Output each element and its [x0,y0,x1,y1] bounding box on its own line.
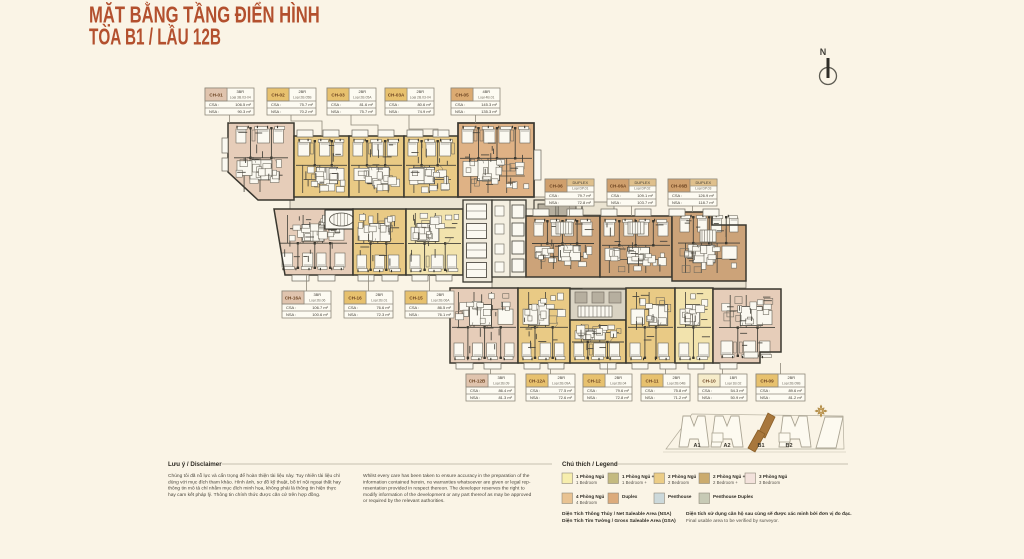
svg-text:Loại 2B.04: Loại 2B.04 [610,382,626,386]
svg-text:103.7 m²: 103.7 m² [637,200,653,205]
svg-text:79.6 m²: 79.6 m² [615,388,629,393]
svg-text:NSA :: NSA : [286,312,296,317]
svg-text:4BR: 4BR [482,89,490,94]
svg-text:1 Phòng Ngủ: 1 Phòng Ngủ [576,474,605,479]
svg-text:2BR: 2BR [787,375,795,380]
svg-text:information contained herein,: information contained herein, no warrant… [363,479,531,485]
svg-text:CSA :: CSA : [645,388,655,393]
svg-text:B1: B1 [757,443,764,449]
svg-text:81.2 m²: 81.2 m² [788,395,802,400]
svg-text:TÒA B1 / LẦU 12B: TÒA B1 / LẦU 12B [89,22,221,50]
svg-text:Loại 2B.03-04: Loại 2B.03-04 [410,96,431,100]
svg-text:Penthouse Duplex: Penthouse Duplex [713,494,754,499]
svg-text:Loại 2B.09: Loại 2B.09 [493,382,509,386]
svg-text:100.6 m²: 100.6 m² [312,312,328,317]
svg-text:Loại 1B.02: Loại 1B.02 [725,382,741,386]
svg-text:Penthouse: Penthouse [668,494,692,499]
svg-text:50.9 m²: 50.9 m² [730,395,744,400]
svg-text:CSA :: CSA : [389,102,399,107]
svg-text:modify information of the deve: modify information of the development or… [363,492,532,498]
svg-text:NSA :: NSA : [209,109,219,114]
svg-text:Loại DP.01: Loại DP.01 [572,187,588,191]
svg-text:A1: A1 [693,443,700,449]
svg-text:1 Bedroom: 1 Bedroom [576,480,597,485]
svg-text:3BR: 3BR [497,375,505,380]
svg-text:2BR: 2BR [416,89,424,94]
svg-text:hay cam kết pháp lý. Thông tin: hay cam kết pháp lý. Thông tin chính thứ… [168,492,320,498]
svg-text:Loại 2B.04B: Loại 2B.04B [667,382,686,386]
svg-text:CSA :: CSA : [611,193,621,198]
svg-text:CSA :: CSA : [455,102,465,107]
svg-text:DUPLEX: DUPLEX [572,180,588,185]
svg-text:CH-12: CH-12 [587,378,601,383]
svg-text:NSA :: NSA : [672,200,682,205]
svg-text:A2: A2 [723,443,730,449]
svg-text:NSA :: NSA : [331,109,341,114]
svg-text:CSA :: CSA : [348,305,358,310]
svg-text:70.2 m²: 70.2 m² [299,109,313,114]
svg-text:Loại 2B.05B: Loại 2B.05B [293,96,312,100]
svg-text:CSA :: CSA : [587,388,597,393]
svg-text:80.6 m²: 80.6 m² [417,102,431,107]
svg-text:or required by the relevant au: or required by the relevant authorities. [363,498,445,504]
svg-text:2BR: 2BR [557,375,565,380]
svg-text:NSA :: NSA : [470,395,480,400]
svg-text:106.5 m²: 106.5 m² [235,102,251,107]
svg-text:CH-09: CH-09 [760,378,774,383]
svg-text:DUPLEX: DUPLEX [634,180,650,185]
svg-text:81.3 m²: 81.3 m² [498,395,512,400]
svg-text:2 Phòng Ngủ: 2 Phòng Ngủ [668,474,697,479]
svg-text:CH-01: CH-01 [209,92,223,97]
svg-text:2BR: 2BR [672,375,680,380]
svg-text:81.6 m²: 81.6 m² [359,102,373,107]
svg-text:72.6 m²: 72.6 m² [558,395,572,400]
svg-text:1BR: 1BR [729,375,737,380]
svg-text:135.3 m²: 135.3 m² [481,109,497,114]
svg-text:Loại 2B.06A: Loại 2B.06A [431,299,450,303]
svg-text:Final usable area to be verifi: Final usable area to be verified by surv… [686,518,779,524]
svg-text:CSA :: CSA : [331,102,341,107]
svg-text:Loại 2B.09B: Loại 2B.09B [782,382,801,386]
svg-text:CSA :: CSA : [530,388,540,393]
svg-text:145.3 m²: 145.3 m² [481,102,497,107]
svg-text:Lưu ý / Disclaimer: Lưu ý / Disclaimer [168,461,222,468]
svg-text:resentation provided in respec: resentation provided in respect thereon.… [363,486,525,492]
svg-text:Duplex: Duplex [622,494,638,499]
svg-text:2BR: 2BR [298,89,306,94]
svg-text:4 Bedroom: 4 Bedroom [576,500,597,505]
svg-text:1 Phòng Ngủ +: 1 Phòng Ngủ + [622,474,655,479]
svg-text:Loại DP.02: Loại DP.02 [634,187,650,191]
svg-text:106.7 m²: 106.7 m² [312,305,328,310]
svg-text:CSA :: CSA : [549,193,559,198]
svg-text:CSA :: CSA : [409,305,419,310]
svg-text:72.3 m²: 72.3 m² [376,312,390,317]
svg-text:NSA :: NSA : [530,395,540,400]
svg-text:CH-12A: CH-12A [529,378,546,383]
svg-text:CH-06A: CH-06A [610,183,627,188]
svg-text:72.8 m²: 72.8 m² [577,200,591,205]
svg-text:75.7 m²: 75.7 m² [359,109,373,114]
svg-text:NSA :: NSA : [702,395,712,400]
svg-text:CH-11: CH-11 [646,378,659,383]
svg-text:Loại 4B.01: Loại 4B.01 [478,96,494,100]
svg-text:2 Phòng Ngủ +: 2 Phòng Ngủ + [713,474,746,479]
svg-text:74.9 m²: 74.9 m² [417,109,431,114]
svg-text:86.4 m²: 86.4 m² [498,388,512,393]
svg-text:CH-06B: CH-06B [671,183,688,188]
svg-text:3BR: 3BR [313,292,321,297]
svg-text:90.3 m²: 90.3 m² [237,109,251,114]
svg-text:2BR: 2BR [436,292,444,297]
svg-text:3 Bedroom: 3 Bedroom [759,480,780,485]
svg-text:CH-05: CH-05 [455,92,469,97]
svg-text:118.7 m²: 118.7 m² [699,200,715,205]
svg-text:CSA :: CSA : [760,388,770,393]
svg-text:NSA :: NSA : [587,395,597,400]
svg-text:CSA :: CSA : [271,102,281,107]
svg-text:79.7 m²: 79.7 m² [577,193,591,198]
svg-text:CH-15: CH-15 [409,295,423,300]
svg-text:Chúng tôi đã nỗ lực và cẩn trọ: Chúng tôi đã nỗ lực và cẩn trọng để hoàn… [168,472,341,479]
svg-text:Diện Tích Thông Thủy / Net Sal: Diện Tích Thông Thủy / Net Saleable Area… [562,511,672,517]
svg-text:2 Bedroom: 2 Bedroom [668,480,689,485]
svg-text:CSA :: CSA : [209,102,219,107]
svg-text:CSA :: CSA : [470,388,480,393]
svg-text:109.1 m²: 109.1 m² [637,193,653,198]
svg-text:2 Bedroom +: 2 Bedroom + [713,480,738,485]
svg-text:CSA :: CSA : [286,305,296,310]
svg-text:77.5 m²: 77.5 m² [558,388,572,393]
svg-text:4 Phòng Ngủ: 4 Phòng Ngủ [576,494,605,499]
svg-text:thông tin mô tả chỉ nhằm mục đ: thông tin mô tả chỉ nhằm mục đích minh h… [168,485,337,492]
svg-text:NSA :: NSA : [409,312,419,317]
svg-text:NSA :: NSA : [455,109,465,114]
svg-text:Loại 2B.06: Loại 2B.06 [309,299,325,303]
svg-text:75.7 m²: 75.7 m² [299,102,313,107]
svg-text:3 Phòng Ngủ: 3 Phòng Ngủ [759,474,788,479]
svg-text:89.6 m²: 89.6 m² [788,388,802,393]
svg-text:NSA :: NSA : [645,395,655,400]
svg-text:CH-12B: CH-12B [469,378,486,383]
svg-text:CSA :: CSA : [702,388,712,393]
svg-text:Loại DP.03: Loại DP.03 [695,187,711,191]
svg-text:Diện Tích Tim Tường / Gross Sa: Diện Tích Tim Tường / Gross Saleable Are… [562,518,676,524]
svg-text:76.1 m²: 76.1 m² [437,312,451,317]
svg-text:Diện tích sử dụng căn hộ sau c: Diện tích sử dụng căn hộ sau cùng sẽ đượ… [686,511,852,517]
svg-text:CSA :: CSA : [672,193,682,198]
svg-text:126.9 m²: 126.9 m² [698,193,714,198]
svg-text:CH-06: CH-06 [549,183,563,188]
svg-text:2BR: 2BR [358,89,366,94]
svg-text:Loại 2B.09A: Loại 2B.09A [552,382,571,386]
svg-text:CH-16: CH-16 [348,295,362,300]
svg-text:CH-10: CH-10 [702,378,716,383]
svg-text:NSA :: NSA : [271,109,281,114]
svg-text:72.8 m²: 72.8 m² [615,395,629,400]
svg-text:NSA :: NSA : [348,312,358,317]
svg-text:NSA :: NSA : [389,109,399,114]
svg-text:Loại 3B.03-04: Loại 3B.03-04 [230,96,251,100]
svg-text:1 Bedroom +: 1 Bedroom + [622,480,647,485]
svg-text:CH-03: CH-03 [331,92,345,97]
svg-text:86.5 m²: 86.5 m² [437,305,451,310]
svg-text:CH-02: CH-02 [271,92,285,97]
svg-text:3BR: 3BR [236,89,244,94]
svg-text:dùng với mục đích tham khảo. H: dùng với mục đích tham khảo. Hình ảnh, s… [168,479,341,485]
svg-text:B2: B2 [785,443,792,449]
svg-text:CH-03A: CH-03A [388,92,405,97]
svg-text:76.6 m²: 76.6 m² [376,305,390,310]
svg-text:2BR: 2BR [375,292,383,297]
svg-text:Loại 2B.01: Loại 2B.01 [371,299,387,303]
svg-text:N: N [820,47,827,57]
svg-text:Whilst every care has been tak: Whilst every care has been taken to ensu… [363,473,530,479]
svg-text:CH-16A: CH-16A [285,295,302,300]
svg-text:NSA :: NSA : [611,200,621,205]
svg-text:Loại 2B.05A: Loại 2B.05A [353,96,372,100]
svg-text:NSA :: NSA : [549,200,559,205]
svg-text:54.3 m²: 54.3 m² [730,388,744,393]
svg-text:75.8 m²: 75.8 m² [673,388,687,393]
svg-text:2BR: 2BR [614,375,622,380]
svg-text:NSA :: NSA : [760,395,770,400]
svg-text:71.2 m²: 71.2 m² [673,395,687,400]
svg-text:Chú thích / Legend: Chú thích / Legend [562,461,618,468]
svg-text:DUPLEX: DUPLEX [695,180,711,185]
